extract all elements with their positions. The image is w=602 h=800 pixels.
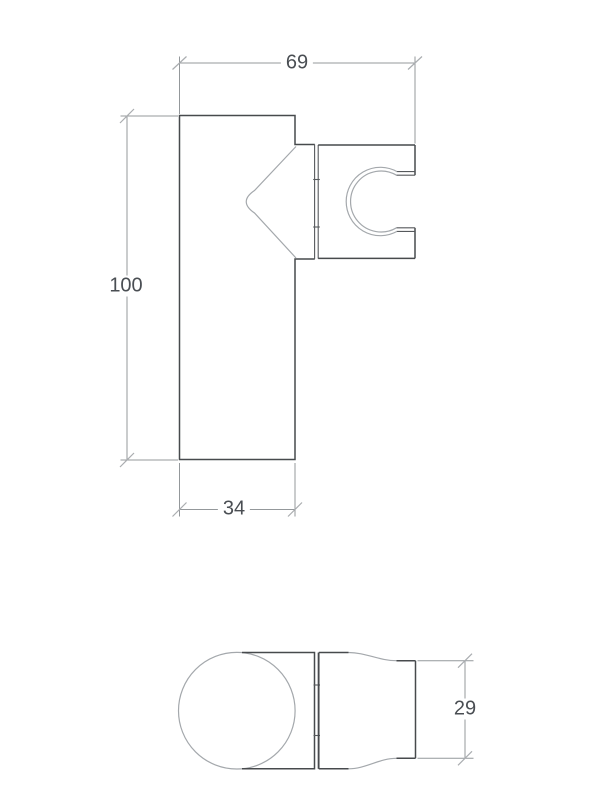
dim-label-bracket-depth: 29: [449, 699, 481, 720]
dim-label-overall-height: 100: [104, 276, 147, 297]
clip-arc-inner: [351, 171, 397, 232]
bottom-bracket-curve-top: [349, 653, 397, 661]
drawing-sheet: 69 100 34 29: [0, 0, 602, 800]
dim-label-overall-width: 69: [281, 53, 313, 74]
dim-label-body-width: 34: [218, 499, 250, 520]
front-view: [180, 116, 416, 460]
bottom-bracket-curve-bottom: [349, 758, 397, 769]
front-body-outline: [180, 116, 315, 460]
bottom-view: [179, 652, 416, 769]
bottom-body-circle: [179, 652, 296, 769]
line-art: [0, 0, 602, 800]
clip-arc-outer: [346, 167, 397, 235]
front-cone-silhouette: [246, 147, 296, 259]
